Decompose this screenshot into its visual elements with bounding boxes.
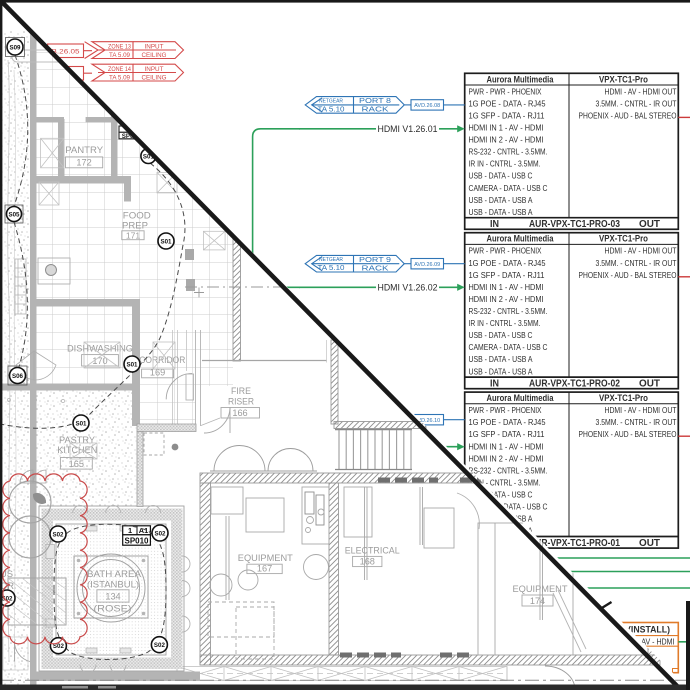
svg-text:HDMI V1.26.02: HDMI V1.26.02	[378, 282, 438, 293]
svg-text:HDMI IN 1 - AV - HDMI: HDMI IN 1 - AV - HDMI	[469, 123, 544, 133]
svg-text:OUT: OUT	[639, 378, 660, 389]
svg-text:PWR - PWR - PHOENIX: PWR - PWR - PHOENIX	[469, 405, 542, 415]
svg-text:USB - DATA - USB A: USB - DATA - USB A	[469, 354, 533, 364]
svg-text:S01: S01	[75, 420, 87, 427]
svg-text:IR IN - CNTRL - 3.5MM.: IR IN - CNTRL - 3.5MM.	[469, 159, 541, 169]
svg-text:OUT: OUT	[639, 219, 660, 230]
svg-text:BATH AREA: BATH AREA	[87, 569, 142, 580]
svg-text:174: 174	[530, 596, 545, 606]
svg-text:3.5MM. - CNTRL - IR OUT: 3.5MM. - CNTRL - IR OUT	[596, 98, 678, 108]
svg-text:USB - DATA - USB C: USB - DATA - USB C	[469, 171, 533, 181]
svg-text:OUT: OUT	[639, 538, 660, 549]
svg-text:HDMI - AV - HDMI OUT: HDMI - AV - HDMI OUT	[605, 86, 678, 96]
svg-text:ZONE 14: ZONE 14	[108, 66, 131, 73]
svg-text:CAMERA - DATA - USB C: CAMERA - DATA - USB C	[469, 183, 548, 193]
svg-text:RS-232 - CNTRL - 3.5MM.: RS-232 - CNTRL - 3.5MM.	[469, 306, 548, 316]
svg-text:USB - DATA - USB A: USB - DATA - USB A	[469, 366, 533, 376]
svg-text:PHOENIX - AUD - BAL STEREO: PHOENIX - AUD - BAL STEREO	[579, 270, 677, 280]
svg-text:3.5MM. - CNTRL - IR OUT: 3.5MM. - CNTRL - IR OUT	[596, 417, 678, 427]
svg-text:CAMERA - DATA - USB C: CAMERA - DATA - USB C	[469, 342, 548, 352]
svg-text:AUR-VPX-TC1-PRO-02: AUR-VPX-TC1-PRO-02	[529, 378, 620, 389]
svg-text:1: 1	[128, 526, 132, 535]
svg-text:CORRIDOR: CORRIDOR	[139, 355, 185, 366]
svg-text:Aurora Multimedia: Aurora Multimedia	[487, 234, 555, 245]
svg-text:168: 168	[360, 556, 375, 566]
svg-text:USB - DATA - USB C: USB - DATA - USB C	[469, 330, 533, 340]
svg-text:S06: S06	[12, 373, 24, 380]
svg-text:HDMI IN 2 - AV - HDMI: HDMI IN 2 - AV - HDMI	[469, 453, 544, 463]
svg-text:USB - DATA - USB A: USB - DATA - USB A	[469, 207, 533, 217]
svg-text:RACK: RACK	[362, 105, 389, 114]
svg-text:172: 172	[76, 158, 91, 168]
svg-text:SP010: SP010	[124, 536, 149, 545]
svg-text:IN: IN	[490, 378, 499, 389]
svg-text:VPX-TC1-Pro: VPX-TC1-Pro	[599, 234, 648, 245]
svg-text:S02: S02	[52, 531, 64, 538]
svg-text:TA 5.10: TA 5.10	[318, 106, 345, 113]
svg-text:171: 171	[126, 230, 141, 240]
svg-text:IR IN - CNTRL - 3.5MM.: IR IN - CNTRL - 3.5MM.	[469, 318, 541, 328]
svg-text:S09: S09	[9, 44, 21, 51]
svg-text:FIRE: FIRE	[231, 386, 251, 397]
svg-text:1G POE - DATA - RJ45: 1G POE - DATA - RJ45	[469, 258, 546, 268]
svg-text:(ISTANBUL): (ISTANBUL)	[87, 580, 139, 591]
svg-text:1G SFP - DATA - RJ11: 1G SFP - DATA - RJ11	[469, 110, 545, 120]
svg-text:(INSTALL): (INSTALL)	[628, 624, 670, 635]
svg-text:S01: S01	[126, 361, 138, 368]
svg-text:AUR-VPX-TC1-PRO-03: AUR-VPX-TC1-PRO-03	[529, 219, 620, 230]
svg-text:1G POE - DATA - RJ45: 1G POE - DATA - RJ45	[469, 98, 546, 108]
svg-text:INPUT: INPUT	[145, 44, 164, 51]
svg-text:S02: S02	[154, 642, 166, 649]
svg-text:CEILING: CEILING	[142, 52, 167, 59]
svg-text:PANTRY: PANTRY	[65, 145, 104, 156]
svg-text:EQUIPMENT: EQUIPMENT	[238, 553, 293, 564]
svg-text:INPUT: INPUT	[145, 66, 164, 73]
svg-text:USB - DATA - USB A: USB - DATA - USB A	[469, 195, 533, 205]
svg-text:S05: S05	[8, 211, 20, 218]
svg-text:1G SFP - DATA - RJ11: 1G SFP - DATA - RJ11	[469, 270, 545, 280]
svg-text:PHOENIX - AUD - BAL STEREO: PHOENIX - AUD - BAL STEREO	[579, 110, 677, 120]
svg-text:TA 5.10: TA 5.10	[318, 265, 345, 272]
svg-text:RS-232 - CNTRL - 3.5MM.: RS-232 - CNTRL - 3.5MM.	[469, 465, 548, 475]
svg-text:167: 167	[257, 563, 272, 573]
svg-text:HDMI - AV - HDMI OUT: HDMI - AV - HDMI OUT	[605, 405, 678, 415]
svg-text:RISER: RISER	[228, 397, 254, 408]
svg-text:HDMI IN 2 - AV - HDMI: HDMI IN 2 - AV - HDMI	[469, 294, 544, 304]
svg-text:HDMI IN 1 - AV - HDMI: HDMI IN 1 - AV - HDMI	[469, 441, 544, 451]
svg-text:134: 134	[105, 592, 120, 602]
svg-text:NETGEAR: NETGEAR	[319, 98, 343, 104]
svg-text:IN: IN	[490, 219, 499, 230]
svg-text:HDMI V1.26.01: HDMI V1.26.01	[378, 123, 438, 134]
svg-text:HDMI - AV - HDMI OUT: HDMI - AV - HDMI OUT	[605, 246, 678, 256]
svg-text:EQUIPMENT: EQUIPMENT	[513, 584, 568, 595]
svg-text:VPX-TC1-Pro: VPX-TC1-Pro	[599, 393, 648, 404]
svg-text:RACK: RACK	[362, 263, 389, 272]
svg-text:RS-232 - CNTRL - 3.5MM.: RS-232 - CNTRL - 3.5MM.	[469, 147, 548, 157]
svg-text:TA 5.09: TA 5.09	[109, 74, 130, 81]
svg-text:S01: S01	[160, 238, 172, 245]
svg-text:3.5MM. - CNTRL - IR OUT: 3.5MM. - CNTRL - IR OUT	[596, 258, 678, 268]
svg-text:PHOENIX - AUD - BAL STEREO: PHOENIX - AUD - BAL STEREO	[579, 429, 677, 439]
svg-text:166: 166	[232, 408, 247, 418]
svg-text:AVD.26.09: AVD.26.09	[414, 262, 440, 268]
svg-text:VPX-TC1-Pro: VPX-TC1-Pro	[599, 74, 648, 85]
svg-text:HDMI IN 2 - AV - HDMI: HDMI IN 2 - AV - HDMI	[469, 135, 544, 145]
svg-text:HDMI IN 1 - AV - HDMI: HDMI IN 1 - AV - HDMI	[469, 282, 544, 292]
svg-text:ZONE 13: ZONE 13	[108, 44, 131, 51]
svg-text:S02: S02	[154, 530, 166, 537]
svg-text:165: 165	[69, 459, 84, 469]
svg-text:DISHWASHING: DISHWASHING	[67, 344, 133, 355]
svg-text:Aurora Multimedia: Aurora Multimedia	[487, 393, 555, 404]
svg-text:NETGEAR: NETGEAR	[319, 257, 343, 263]
svg-text:PWR - PWR - PHOENIX: PWR - PWR - PHOENIX	[469, 246, 542, 256]
svg-text:ELECTRICAL: ELECTRICAL	[345, 546, 401, 557]
svg-text:A1: A1	[139, 526, 148, 535]
svg-text:1G POE - DATA - RJ45: 1G POE - DATA - RJ45	[469, 417, 546, 427]
svg-text:(ROSE): (ROSE)	[94, 604, 132, 615]
svg-text:1G SFP - DATA - RJ11: 1G SFP - DATA - RJ11	[469, 429, 545, 439]
svg-text:PWR - PWR - PHOENIX: PWR - PWR - PHOENIX	[469, 86, 542, 96]
svg-text:TA 5.09: TA 5.09	[109, 52, 130, 59]
svg-text:Aurora Multimedia: Aurora Multimedia	[487, 74, 555, 85]
svg-text:AVD.26.08: AVD.26.08	[414, 103, 440, 109]
svg-text:CEILING: CEILING	[142, 74, 167, 81]
